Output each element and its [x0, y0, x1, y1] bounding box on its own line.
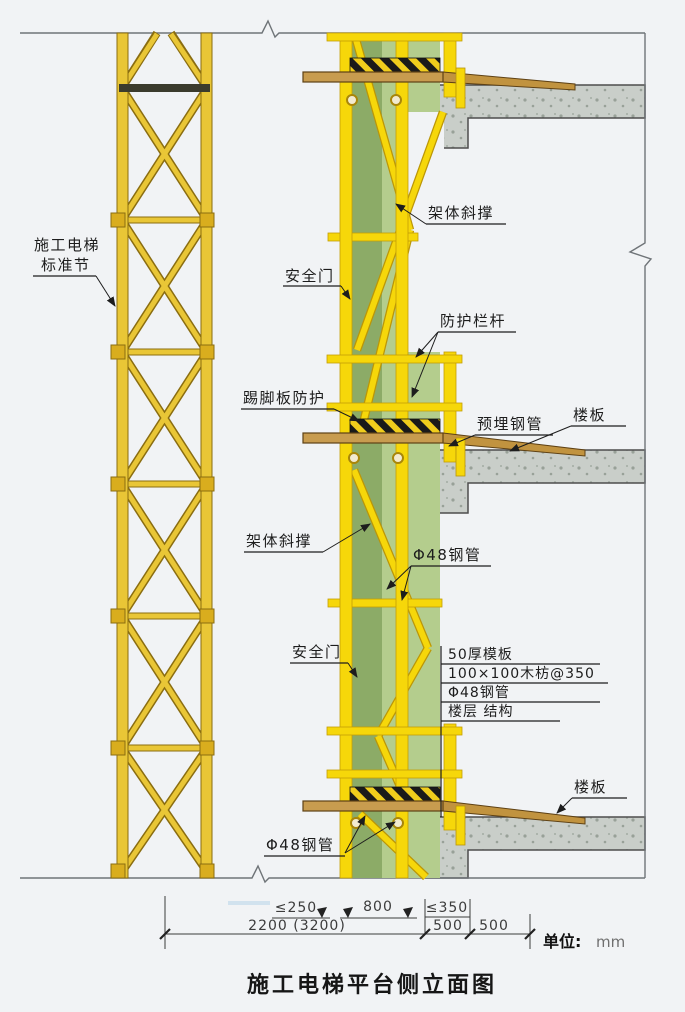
note-steel-pipe: Φ48钢管: [448, 685, 510, 701]
toe-board-hazard: [350, 58, 440, 72]
elevation-drawing: 施工电梯 标准节 安全门 架体斜撑 防护栏杆 踢脚板防护 预埋钢: [0, 0, 685, 1012]
note-floor-structure: 楼层 结构: [448, 704, 513, 720]
coupler: [393, 818, 403, 828]
steel-pipe-bottom-label: Φ48钢管: [266, 836, 334, 854]
dim-250: ≤250: [275, 900, 317, 916]
toe-board-hazard: [350, 419, 440, 433]
top-rail: [327, 33, 462, 41]
safety-door-bottom-label: 安全门: [292, 643, 342, 661]
steel-pipe-mid-label: Φ48钢管: [413, 546, 481, 564]
floor-slab-mid-label: 楼板: [573, 406, 606, 424]
unit-value: mm: [596, 933, 625, 951]
dim-2200: 2200 (3200): [248, 918, 346, 934]
deck-plank: [303, 72, 443, 82]
mid-rail: [327, 770, 462, 778]
coupler: [349, 453, 359, 463]
frame-brace-mid-label: 架体斜撑: [246, 532, 312, 550]
tower-dark-tie-bar: [119, 84, 210, 92]
tower-label-line1: 施工电梯: [34, 236, 100, 254]
floor-slab-bottom-label: 楼板: [574, 778, 607, 796]
dim-800: 800: [363, 899, 393, 915]
scan-artifact: [228, 901, 270, 905]
mid-rail: [327, 403, 462, 411]
dim-500-b: 500: [479, 918, 509, 934]
deck-plank: [303, 433, 443, 443]
dim-350: ≤350: [426, 900, 468, 916]
note-formwork: 50厚模板: [448, 647, 513, 663]
deck-plank: [303, 801, 443, 811]
toe-board-hazard: [350, 787, 440, 801]
safety-door-top-label: 安全门: [285, 267, 335, 285]
tower-label-line2: 标准节: [41, 256, 91, 274]
coupler: [391, 95, 401, 105]
unit-label: 单位:: [543, 932, 581, 951]
outer-post: [444, 33, 456, 97]
guard-rail-label: 防护栏杆: [440, 312, 506, 330]
frame-brace-top-label: 架体斜撑: [428, 204, 494, 222]
drawing-title: 施工电梯平台侧立面图: [247, 972, 497, 998]
embedded-pipe: [456, 68, 465, 108]
coupler: [393, 453, 403, 463]
embedded-pipe: [456, 806, 465, 845]
embedded-pipe-label: 预埋钢管: [477, 415, 543, 433]
top-rail: [327, 355, 462, 363]
coupler: [347, 95, 357, 105]
dim-500-a: 500: [433, 918, 463, 934]
top-rail: [327, 727, 462, 735]
note-wood-batten: 100×100木枋@350: [448, 666, 595, 682]
embedded-pipe: [456, 438, 465, 476]
toe-board-label: 踢脚板防护: [243, 389, 326, 407]
